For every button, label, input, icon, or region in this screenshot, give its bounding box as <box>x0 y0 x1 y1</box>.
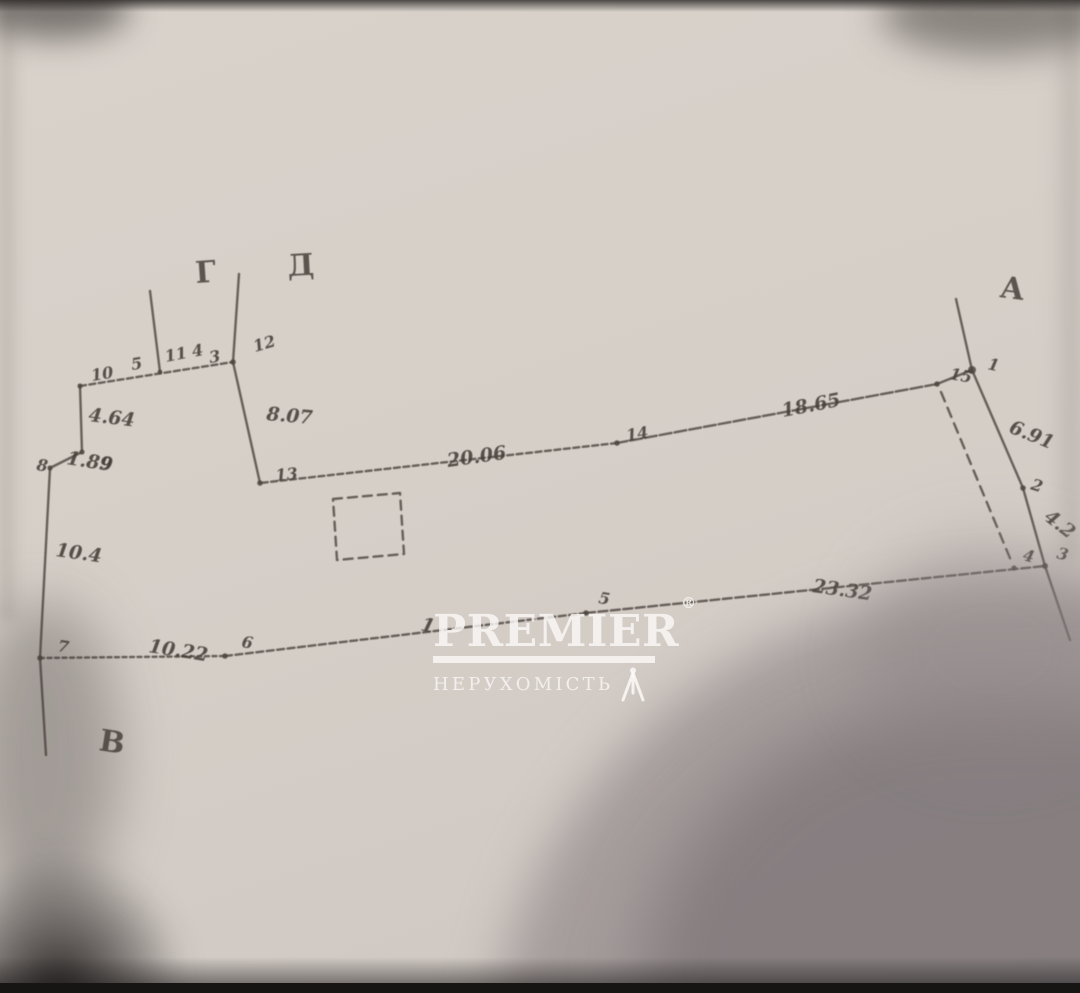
boundary-right-edge <box>972 370 1045 566</box>
point-label-14: 14 <box>625 423 650 445</box>
left-edge-shading <box>0 0 22 620</box>
point-label-10: 10 <box>90 363 115 385</box>
watermark-brand-row: PREMIER® <box>433 610 697 654</box>
registered-trademark-icon: ® <box>681 594 697 612</box>
dashed-divider-15-4 <box>941 392 1012 563</box>
boundary-12-13 <box>233 274 260 483</box>
point-label-13: 13 <box>274 464 298 485</box>
corner-letter-de: Д <box>287 248 315 284</box>
measurement-8-07: 8.07 <box>265 403 314 429</box>
photo-bottom-gradient <box>0 957 1080 985</box>
measurement-18-65: 18.65 <box>780 389 843 422</box>
shadow-bottom-left <box>0 700 390 993</box>
measurement-10-4: 10.4 <box>54 539 103 567</box>
measurement-23-32: 23.32 <box>810 575 873 605</box>
measurement-4-64: 4.64 <box>87 404 136 431</box>
surveyor-tripod-icon <box>620 666 646 702</box>
point-label-top-4: 4 <box>190 340 204 361</box>
point-label-2: 2 <box>1028 474 1045 496</box>
point-label-1: 1 <box>986 354 1001 375</box>
boundary-14-13 <box>260 443 617 483</box>
watermark: PREMIER® НЕРУХОМІСТЬ <box>433 610 697 702</box>
right-edge-shading <box>1050 0 1080 560</box>
point-label-top-5: 5 <box>130 353 144 374</box>
boundary-15-14 <box>617 384 937 443</box>
point-label-top-3: 3 <box>208 346 222 367</box>
point-label-12: 12 <box>251 331 278 355</box>
watermark-brand: PREMIER <box>433 606 679 657</box>
measurement-20-06: 20.06 <box>445 442 508 472</box>
point-label-15: 15 <box>948 364 973 387</box>
survey-plan-photo: Г Д А В 4.64 8.07 1.89 10.4 10.22 1 23.3… <box>0 0 1080 993</box>
watermark-divider <box>433 656 655 663</box>
corner-letter-a: А <box>998 270 1027 308</box>
watermark-subtitle-row: НЕРУХОМІСТЬ <box>433 666 697 702</box>
dashed-outbuilding-square <box>333 493 404 560</box>
photo-bottom-edge <box>0 983 1080 993</box>
point-label-8: 8 <box>34 455 49 476</box>
corner-letter-gamma: Г <box>194 255 217 291</box>
measurement-10-22: 10.22 <box>147 635 209 666</box>
point-label-11: 11 <box>163 343 188 366</box>
boundary-extension-above-1 <box>956 299 972 370</box>
point-label-6: 6 <box>240 632 254 653</box>
watermark-subtitle: НЕРУХОМІСТЬ <box>433 674 613 695</box>
fence-line-g <box>150 291 160 372</box>
